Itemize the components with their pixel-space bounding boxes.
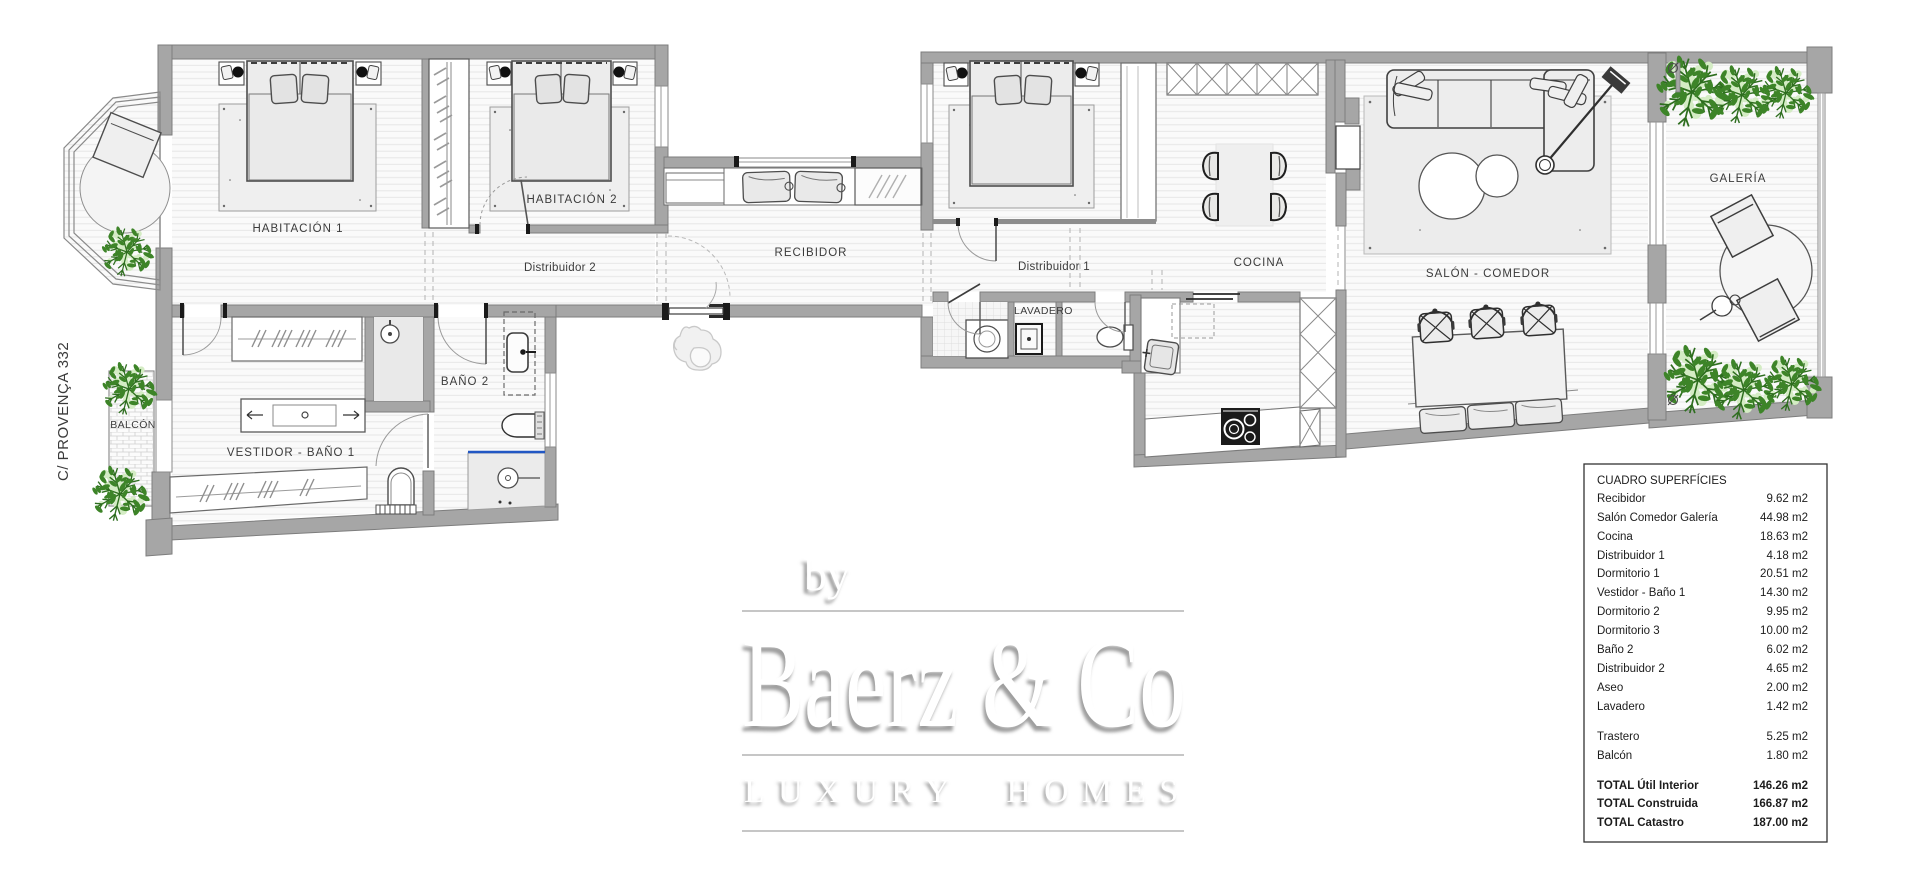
svg-text:BALCÓN: BALCÓN bbox=[110, 418, 156, 431]
svg-text:44.98 m2: 44.98 m2 bbox=[1760, 512, 1808, 524]
svg-text:C/ PROVENÇA 332: C/ PROVENÇA 332 bbox=[55, 342, 72, 481]
svg-text:Cocina: Cocina bbox=[1597, 531, 1633, 543]
svg-text:Distribuidor 2: Distribuidor 2 bbox=[524, 262, 596, 274]
svg-text:18.63 m2: 18.63 m2 bbox=[1760, 531, 1808, 543]
svg-text:187.00 m2: 187.00 m2 bbox=[1753, 817, 1808, 829]
svg-text:SALÓN - COMEDOR: SALÓN - COMEDOR bbox=[1426, 267, 1550, 280]
svg-text:CUADRO SUPERFÍCIES: CUADRO SUPERFÍCIES bbox=[1597, 474, 1727, 487]
svg-text:TOTAL Construida: TOTAL Construida bbox=[1597, 798, 1699, 810]
svg-text:4.65 m2: 4.65 m2 bbox=[1766, 663, 1808, 675]
svg-text:1.80 m2: 1.80 m2 bbox=[1766, 750, 1808, 762]
svg-text:Balcón: Balcón bbox=[1597, 750, 1632, 762]
svg-text:Dormitorio 1: Dormitorio 1 bbox=[1597, 568, 1660, 580]
svg-text:GALERÍA: GALERÍA bbox=[1710, 172, 1767, 185]
svg-text:Aseo: Aseo bbox=[1597, 682, 1623, 694]
svg-text:6.02 m2: 6.02 m2 bbox=[1766, 644, 1808, 656]
svg-text:4.18 m2: 4.18 m2 bbox=[1766, 550, 1808, 562]
svg-text:HABITACIÓN 2: HABITACIÓN 2 bbox=[526, 193, 617, 206]
svg-text:Dormitorio 2: Dormitorio 2 bbox=[1597, 606, 1660, 618]
svg-text:2.00 m2: 2.00 m2 bbox=[1766, 682, 1808, 694]
svg-text:RECIBIDOR: RECIBIDOR bbox=[775, 247, 848, 259]
svg-text:Salón Comedor Galería: Salón Comedor Galería bbox=[1597, 512, 1718, 524]
svg-text:Trastero: Trastero bbox=[1597, 731, 1639, 743]
svg-text:166.87 m2: 166.87 m2 bbox=[1753, 798, 1808, 810]
svg-text:Lavadero: Lavadero bbox=[1597, 701, 1645, 713]
svg-text:5.25 m2: 5.25 m2 bbox=[1766, 731, 1808, 743]
svg-text:Baño 2: Baño 2 bbox=[1597, 644, 1633, 656]
svg-text:BAÑO 2: BAÑO 2 bbox=[441, 375, 489, 388]
svg-text:Distribuidor 1: Distribuidor 1 bbox=[1018, 261, 1090, 273]
svg-text:VESTIDOR - BAÑO 1: VESTIDOR - BAÑO 1 bbox=[227, 446, 355, 459]
svg-text:9.95 m2: 9.95 m2 bbox=[1766, 606, 1808, 618]
svg-text:146.26 m2: 146.26 m2 bbox=[1753, 780, 1808, 792]
svg-text:Distribuidor 1: Distribuidor 1 bbox=[1597, 550, 1665, 562]
svg-text:Dormitorio 3: Dormitorio 3 bbox=[1597, 625, 1660, 637]
svg-text:Distribuidor 2: Distribuidor 2 bbox=[1597, 663, 1665, 675]
svg-text:Vestidor - Baño 1: Vestidor - Baño 1 bbox=[1597, 587, 1685, 599]
svg-text:1.42 m2: 1.42 m2 bbox=[1766, 701, 1808, 713]
svg-text:14.30 m2: 14.30 m2 bbox=[1760, 587, 1808, 599]
svg-text:9.62 m2: 9.62 m2 bbox=[1766, 493, 1808, 505]
svg-text:HABITACIÓN 1: HABITACIÓN 1 bbox=[252, 222, 343, 235]
svg-text:20.51 m2: 20.51 m2 bbox=[1760, 568, 1808, 580]
svg-text:LAVADERO: LAVADERO bbox=[1014, 305, 1073, 317]
svg-text:TOTAL Útil Interior: TOTAL Útil Interior bbox=[1597, 779, 1699, 792]
svg-text:TOTAL Catastro: TOTAL Catastro bbox=[1597, 817, 1684, 829]
svg-text:10.00 m2: 10.00 m2 bbox=[1760, 625, 1808, 637]
svg-text:COCINA: COCINA bbox=[1234, 257, 1285, 269]
svg-text:Recibidor: Recibidor bbox=[1597, 493, 1646, 505]
